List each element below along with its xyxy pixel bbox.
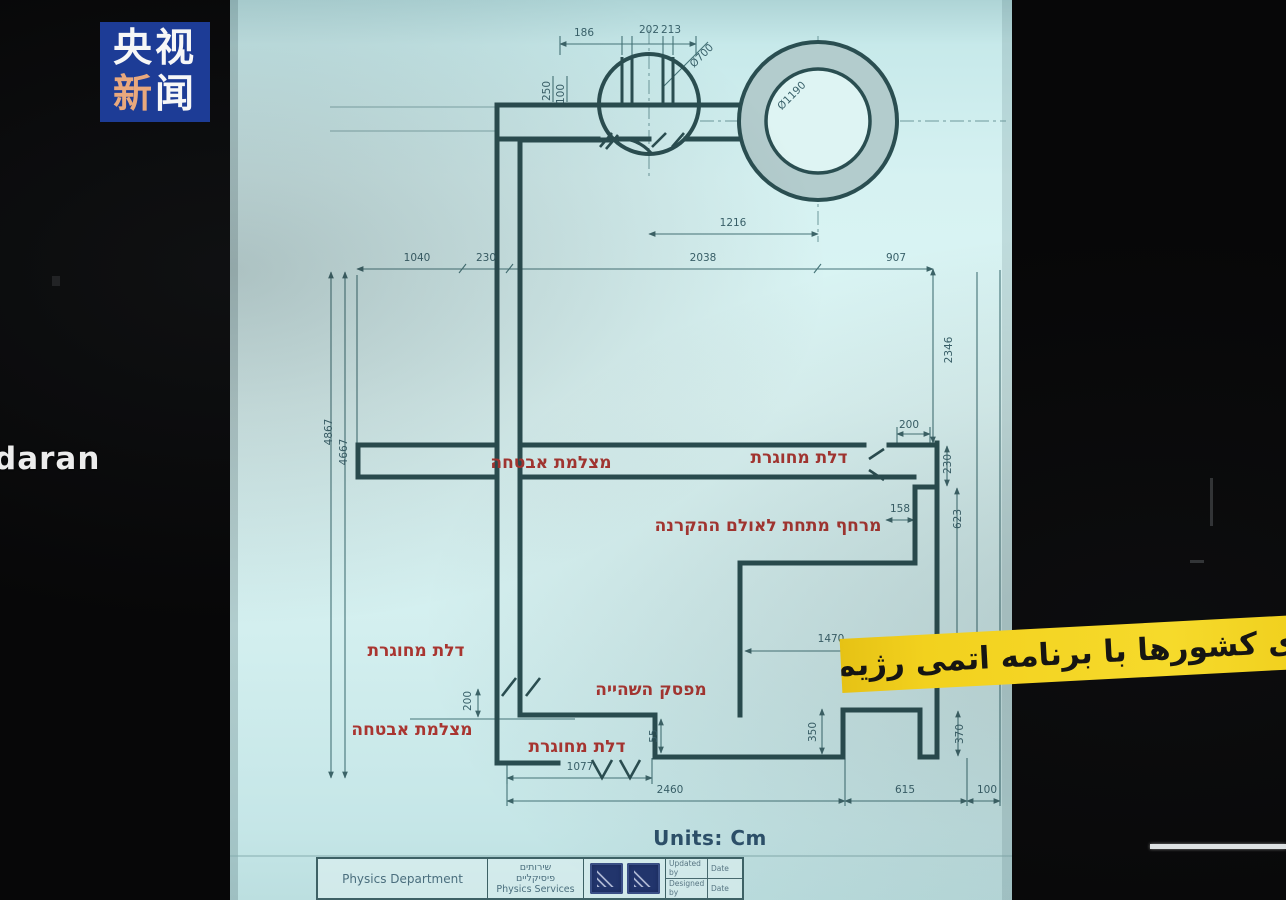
annotation-label: מרחף מתחת לאולם ההקרנה: [655, 516, 882, 536]
annotation-label: דלת מחוגרת: [750, 448, 847, 468]
institution-stamp-icon: [627, 863, 660, 894]
services-cell: שירותים פיסיקליים Physics Services: [488, 859, 584, 898]
dimension-label: 200: [899, 419, 919, 431]
meta-cell: Updated by Date Designed by Date: [666, 859, 742, 898]
dimension-label: 55: [648, 729, 660, 742]
dimension-label: 615: [895, 784, 915, 796]
dimension-label: 4667: [338, 439, 350, 466]
title-block: Physics Department שירותים פיסיקליים Phy…: [316, 857, 744, 900]
video-artifact: [52, 276, 60, 286]
annotation-label: דלת מחוגרת: [528, 737, 625, 757]
dimension-label: 230: [942, 454, 954, 474]
services-hebrew-2: פיסיקליים: [516, 873, 555, 884]
annotation-label: מצלמת אבטחה: [351, 720, 472, 740]
logo-line1: 央视: [113, 26, 197, 72]
dimension-label: 907: [886, 252, 906, 264]
logo-char-xin: 新: [113, 72, 155, 117]
paper-edge-shade-right: [1002, 0, 1012, 900]
dimension-label: 350: [807, 722, 819, 742]
annotation-label: מצלמת אבטחה: [490, 453, 611, 473]
paper-edge-shade: [230, 0, 238, 900]
dimension-label: 230: [476, 252, 496, 264]
dimension-label: 623: [952, 509, 964, 529]
dimension-label: 200: [462, 691, 474, 711]
dimension-label: 1040: [404, 252, 431, 264]
dimension-label: 1077: [567, 761, 594, 773]
ring-room: [739, 42, 897, 200]
stamps-cell: [584, 859, 666, 898]
department-cell: Physics Department: [318, 859, 488, 898]
dimension-label: 250: [541, 81, 553, 101]
dimension-label: 1216: [720, 217, 747, 229]
dimension-label: 202: [639, 24, 659, 36]
video-artifact: [1210, 478, 1213, 526]
dimension-label: 370: [954, 724, 966, 744]
dimension-label: 2346: [943, 336, 955, 363]
updated-by-label: Updated by: [666, 859, 708, 879]
floor-plan-drawing: 186202213Ø700250100Ø11901216104023020389…: [0, 0, 1286, 900]
left-partial-caption: daran: [0, 441, 100, 477]
services-hebrew-1: שירותים: [520, 862, 551, 873]
annotation-label: מפסק השהייה: [595, 680, 706, 700]
dimension-label: 186: [574, 27, 594, 39]
institution-stamp-icon: [590, 863, 623, 894]
dimension-label: 100: [555, 84, 567, 104]
date-label: Date: [708, 879, 742, 899]
units-label: Units: Cm: [625, 826, 795, 850]
broadcast-frame: 186202213Ø700250100Ø11901216104023020389…: [0, 0, 1286, 900]
cctv-news-logo: 央视 新闻: [100, 22, 210, 122]
video-artifact: [1190, 560, 1204, 563]
annotation-label: דלת מחוגרת: [367, 641, 464, 661]
logo-line2: 新闻: [113, 72, 197, 118]
dimension-label: 4867: [323, 419, 335, 446]
dimension-label: 2460: [657, 784, 684, 796]
dimension-label: 158: [890, 503, 910, 515]
dimension-label: 100: [977, 784, 997, 796]
logo-char-wen: 闻: [155, 72, 197, 117]
subtitle-underline-artifact: [1150, 844, 1286, 849]
dimension-label: 2038: [690, 252, 717, 264]
designed-by-label: Designed by: [666, 879, 708, 899]
services-english: Physics Services: [496, 884, 574, 895]
date-label: Date: [708, 859, 742, 879]
dimension-label: 213: [661, 24, 681, 36]
